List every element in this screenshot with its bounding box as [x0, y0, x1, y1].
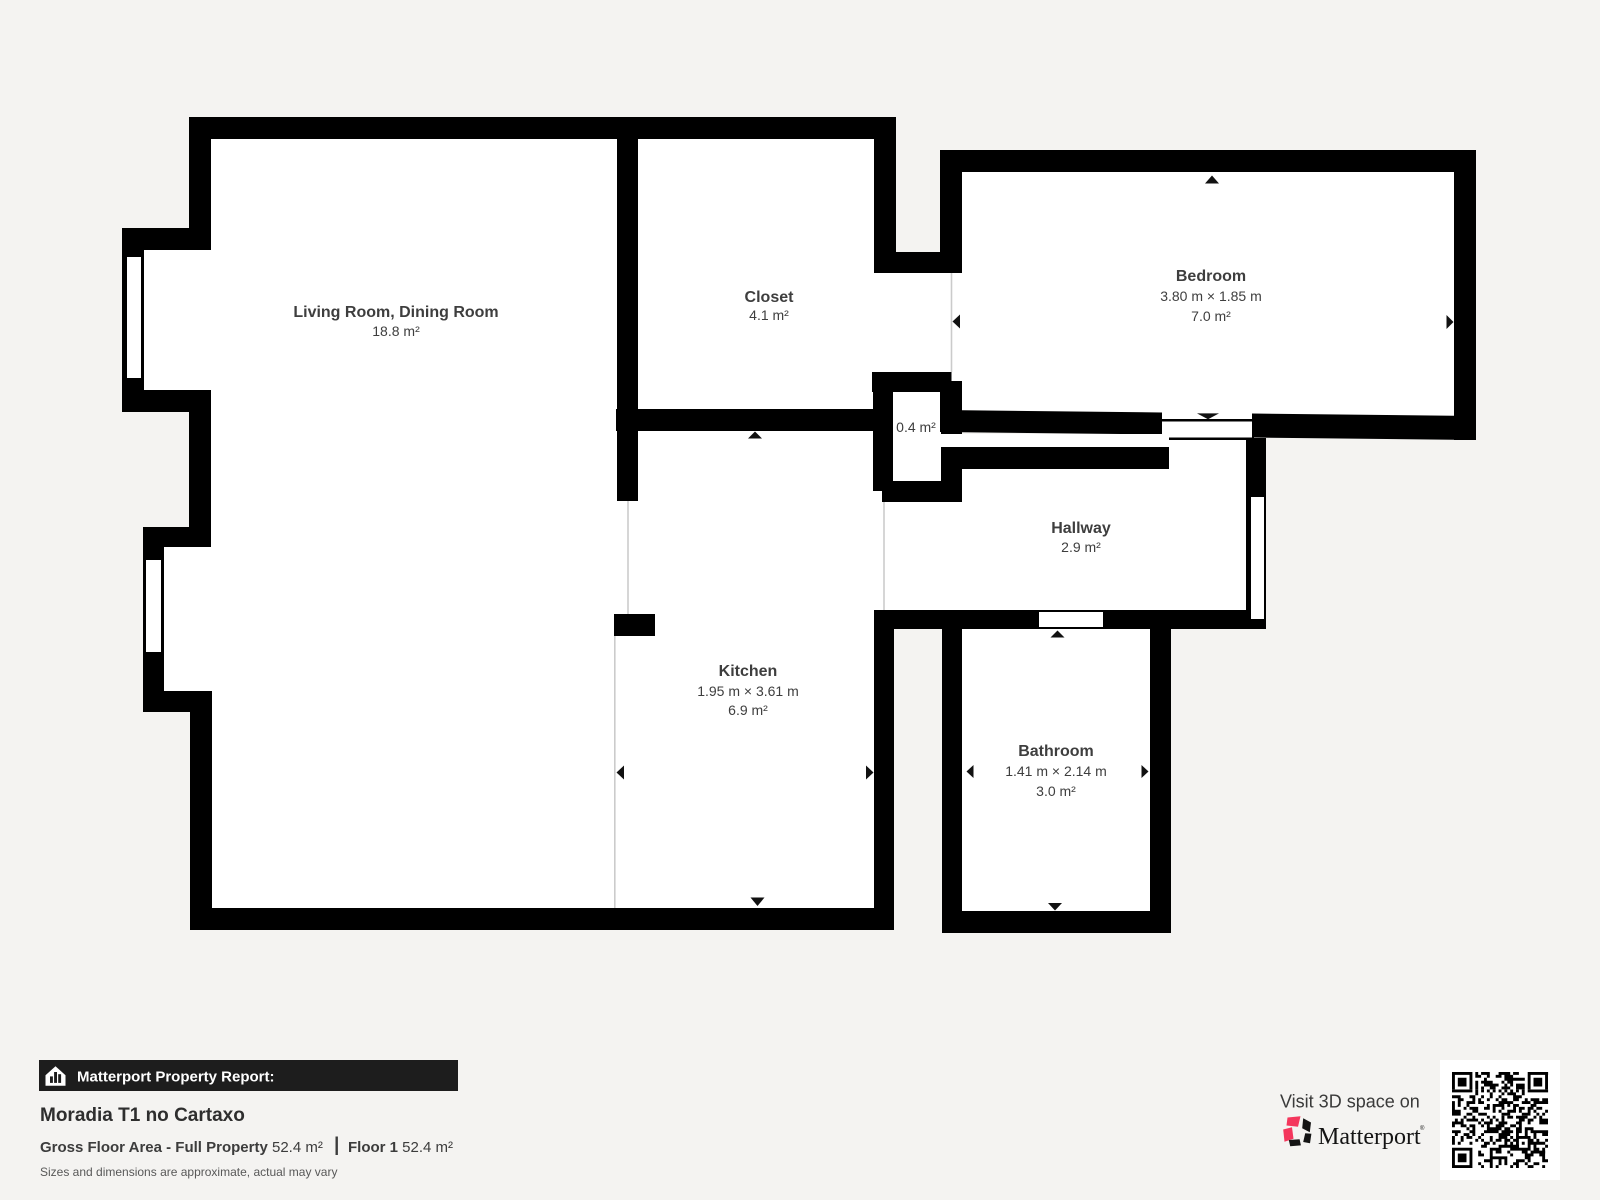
svg-text:Visit 3D space on: Visit 3D space on	[1280, 1092, 1420, 1112]
svg-text:Gross Floor Area - Full Proper: Gross Floor Area - Full Property 52.4 m²	[40, 1139, 323, 1156]
svg-text:3.80 m × 1.85 m: 3.80 m × 1.85 m	[1160, 288, 1262, 304]
svg-text:1.41 m × 2.14 m: 1.41 m × 2.14 m	[1005, 763, 1107, 779]
svg-text:Floor 1 52.4 m²: Floor 1 52.4 m²	[348, 1139, 453, 1156]
svg-text:Sizes and dimensions are appro: Sizes and dimensions are approximate, ac…	[40, 1165, 337, 1179]
svg-text:4.1 m²: 4.1 m²	[749, 307, 789, 323]
svg-text:Kitchen: Kitchen	[719, 663, 778, 680]
svg-text:®: ®	[1420, 1125, 1425, 1132]
svg-text:Hallway: Hallway	[1051, 520, 1111, 537]
svg-text:6.9 m²: 6.9 m²	[728, 702, 768, 718]
svg-text:Living Room, Dining Room: Living Room, Dining Room	[293, 304, 498, 321]
svg-text:Bedroom: Bedroom	[1176, 268, 1246, 285]
svg-text:2.9 m²: 2.9 m²	[1061, 539, 1101, 555]
svg-text:1.95 m × 3.61 m: 1.95 m × 3.61 m	[697, 683, 799, 699]
svg-text:Closet: Closet	[745, 289, 795, 306]
svg-text:Matterport Property Report:: Matterport Property Report:	[77, 1069, 275, 1086]
svg-text:0.4 m²: 0.4 m²	[896, 419, 936, 435]
svg-text:Moradia T1 no Cartaxo: Moradia T1 no Cartaxo	[40, 1105, 245, 1126]
svg-text:7.0 m²: 7.0 m²	[1191, 308, 1231, 324]
svg-text:Matterport: Matterport	[1318, 1124, 1421, 1150]
svg-text:18.8 m²: 18.8 m²	[372, 323, 420, 339]
svg-text:3.0 m²: 3.0 m²	[1036, 783, 1076, 799]
svg-text:Bathroom: Bathroom	[1018, 743, 1094, 760]
